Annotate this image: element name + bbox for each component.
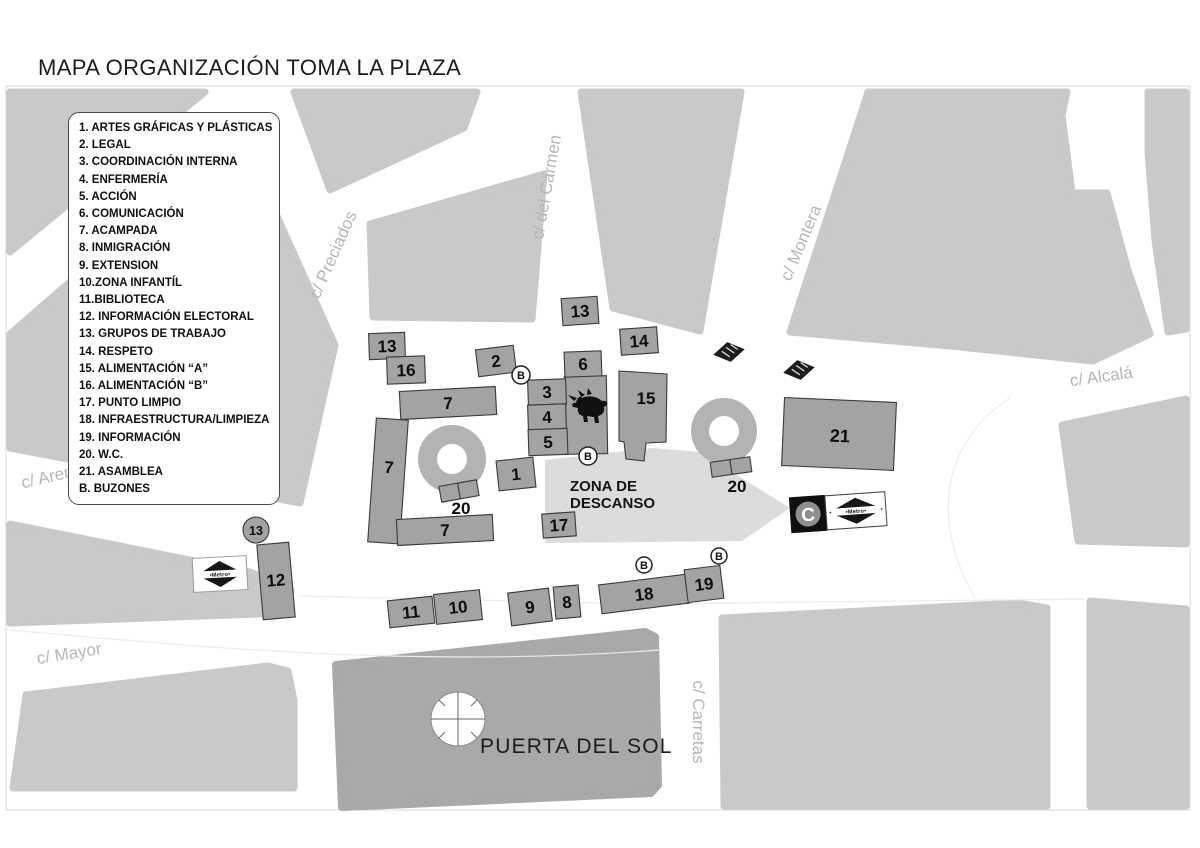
svg-text:20: 20 — [452, 499, 471, 518]
legend-item: 16. ALIMENTACIÓN “B” — [79, 378, 279, 395]
legend-item: 20. W.C. — [79, 447, 279, 464]
svg-text:6: 6 — [578, 355, 588, 374]
city-block-east — [1062, 399, 1186, 544]
legend-item: 2. LEGAL — [79, 137, 279, 154]
buzon-badge: B — [512, 366, 530, 384]
legend-item: 11.BIBLIOTECA — [79, 292, 279, 309]
legend-item: B. BUZONES — [79, 481, 279, 498]
svg-text:B: B — [517, 370, 525, 382]
svg-text:19: 19 — [694, 574, 715, 595]
block-13-carmen: 13 — [561, 296, 599, 325]
block-21: 21 — [782, 398, 897, 471]
legend-item: 14. RESPETO — [79, 344, 279, 361]
fountain-east — [691, 398, 757, 464]
buzon-badge: B — [579, 447, 597, 465]
svg-text:13: 13 — [377, 337, 397, 357]
metro-sign-west: •Metro• — [192, 556, 248, 593]
block-1: 1 — [496, 457, 536, 491]
svg-text:11: 11 — [401, 602, 421, 623]
legend-item: 8. INMIGRACIÓN — [79, 240, 279, 257]
legend-item: 6. COMUNICACIÓN — [79, 206, 279, 223]
legend-list: 1. ARTES GRÁFICAS Y PLÁSTICAS 2. LEGAL 3… — [79, 120, 279, 498]
block-5: 5 — [528, 428, 568, 455]
block-7-north: 7 — [399, 387, 496, 420]
svg-text:4: 4 — [542, 408, 553, 427]
legend-item: 17. PUNTO LIMPIO — [79, 395, 279, 412]
block-19: 19 — [684, 565, 724, 602]
svg-text:7: 7 — [384, 458, 395, 478]
rest-area-label-line2: DESCANSO — [570, 495, 655, 512]
legend: 1. ARTES GRÁFICAS Y PLÁSTICAS 2. LEGAL 3… — [68, 112, 280, 505]
svg-text:13: 13 — [570, 301, 590, 321]
svg-text:21: 21 — [829, 426, 850, 447]
block-17: 17 — [542, 512, 577, 538]
legend-item: 12. INFORMACIÓN ELECTORAL — [79, 309, 279, 326]
block-2: 2 — [475, 345, 516, 376]
legend-item: 1. ARTES GRÁFICAS Y PLÁSTICAS — [79, 120, 279, 137]
legend-item: 18. INFRAESTRUCTURA/LIMPIEZA — [79, 412, 279, 429]
legend-item: 3. COORDINACIÓN INTERNA — [79, 154, 279, 171]
legend-item: 5. ACCIÓN — [79, 189, 279, 206]
svg-text:18: 18 — [634, 584, 655, 605]
legend-item: 21. ASAMBLEA — [79, 464, 279, 481]
legend-item: 10.ZONA INFANTÍL — [79, 275, 279, 292]
legend-item: 7. ACAMPADA — [79, 223, 279, 240]
svg-text:13: 13 — [249, 524, 263, 538]
buzon-badge: B — [636, 557, 652, 573]
block-14: 14 — [620, 327, 659, 356]
legend-item: 15. ALIMENTACIÓN “A” — [79, 361, 279, 378]
svg-text:7: 7 — [440, 521, 450, 540]
clock-icon — [431, 692, 485, 746]
block-3: 3 — [528, 379, 567, 405]
block-8: 8 — [553, 585, 581, 619]
svg-text:8: 8 — [561, 593, 572, 613]
svg-text:16: 16 — [396, 361, 416, 381]
building-casa-de-correos — [336, 632, 658, 807]
svg-text:7: 7 — [443, 394, 453, 413]
svg-text:17: 17 — [549, 515, 569, 535]
block-4: 4 — [528, 404, 567, 430]
svg-text:5: 5 — [543, 433, 553, 452]
plaza-name-label: PUERTA DEL SOL — [480, 735, 673, 758]
svg-text:B: B — [715, 551, 723, 563]
cercanias-metro-sign: C •Metro• — [789, 491, 887, 534]
city-block-se-corner — [1090, 601, 1186, 806]
legend-item: 9. EXTENSION — [79, 258, 279, 275]
svg-text:C: C — [801, 505, 816, 527]
city-block-se — [722, 603, 1047, 806]
svg-text:3: 3 — [542, 383, 552, 402]
svg-text:15: 15 — [637, 389, 656, 408]
block-7-south: 7 — [396, 515, 493, 546]
page-title: MAPA ORGANIZACIÓN TOMA LA PLAZA — [38, 55, 461, 81]
svg-text:20: 20 — [728, 477, 747, 496]
svg-text:B: B — [640, 560, 648, 572]
svg-text:12: 12 — [266, 570, 287, 591]
block-6: 6 — [564, 351, 602, 377]
svg-text:1: 1 — [510, 465, 521, 485]
badge-13-circle: 13 — [243, 517, 269, 543]
block-10: 10 — [434, 590, 483, 625]
svg-text:14: 14 — [629, 331, 650, 351]
block-11: 11 — [387, 596, 435, 628]
buzon-badge: B — [711, 548, 727, 564]
svg-text:10: 10 — [448, 597, 469, 618]
svg-text:•Metro•: •Metro• — [210, 572, 231, 579]
legend-item: 4. ENFERMERÍA — [79, 172, 279, 189]
street-label-carretas: c/ Carretas — [689, 680, 708, 763]
legend-item: 19. INFORMACIÓN — [79, 430, 279, 447]
block-9: 9 — [508, 588, 553, 626]
block-13-west: 13 — [369, 332, 406, 359]
block-12: 12 — [257, 542, 295, 620]
rest-area-label-line1: ZONA DE — [570, 478, 637, 495]
block-16: 16 — [387, 356, 426, 384]
legend-item: 13. GRUPOS DE TRABAJO — [79, 326, 279, 343]
svg-text:B: B — [584, 451, 592, 463]
